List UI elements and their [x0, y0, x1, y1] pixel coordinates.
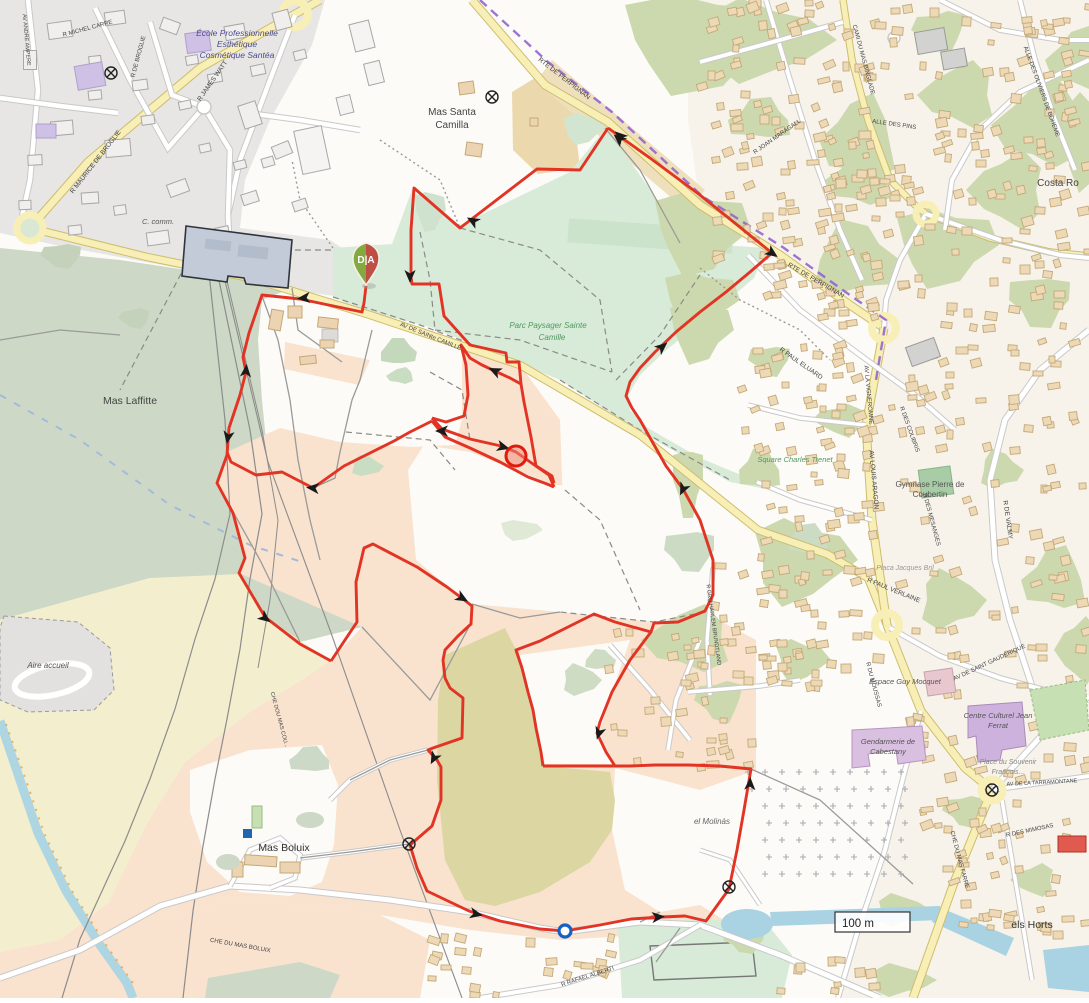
svg-text:Place du Souvenir: Place du Souvenir: [980, 759, 1037, 766]
svg-text:Costa Ro: Costa Ro: [1037, 178, 1079, 189]
svg-text:Square Charles Trenet: Square Charles Trenet: [757, 455, 833, 464]
svg-text:Aire accueil: Aire accueil: [26, 661, 69, 670]
svg-text:Gymnase Pierre de: Gymnase Pierre de: [896, 480, 965, 489]
svg-text:Mas Laffitte: Mas Laffitte: [103, 395, 157, 407]
svg-text:Ferrat: Ferrat: [988, 721, 1009, 730]
svg-text:Mas Boluix: Mas Boluix: [258, 842, 310, 854]
svg-text:Camille: Camille: [539, 333, 566, 342]
svg-text:Camilla: Camilla: [435, 120, 469, 131]
svg-text:François...: François...: [992, 769, 1025, 776]
svg-text:C. comm.: C. comm.: [142, 217, 174, 226]
svg-text:Placa Jacques Bril: Placa Jacques Bril: [876, 565, 934, 572]
svg-text:Parc Paysager Sainte: Parc Paysager Sainte: [509, 321, 587, 330]
svg-text:Coubertin: Coubertin: [913, 490, 948, 499]
svg-text:100 m: 100 m: [842, 918, 874, 930]
svg-text:Centre Culturel Jean: Centre Culturel Jean: [964, 711, 1033, 720]
svg-text:el Molinàs: el Molinàs: [694, 817, 730, 826]
svg-text:els Horts: els Horts: [1011, 919, 1052, 931]
svg-text:Mas Santa: Mas Santa: [428, 107, 476, 118]
svg-text:Esthétique: Esthétique: [217, 39, 257, 49]
svg-text:Cosmétique Santéa: Cosmétique Santéa: [200, 50, 275, 60]
svg-text:D|A: D|A: [357, 255, 374, 266]
svg-text:Gendarmerie de: Gendarmerie de: [861, 737, 915, 746]
svg-text:Cabestany: Cabestany: [870, 747, 907, 756]
svg-text:École Professionnelle: École Professionnelle: [196, 28, 278, 38]
svg-text:Espace Guy Mocquet: Espace Guy Mocquet: [869, 677, 942, 686]
